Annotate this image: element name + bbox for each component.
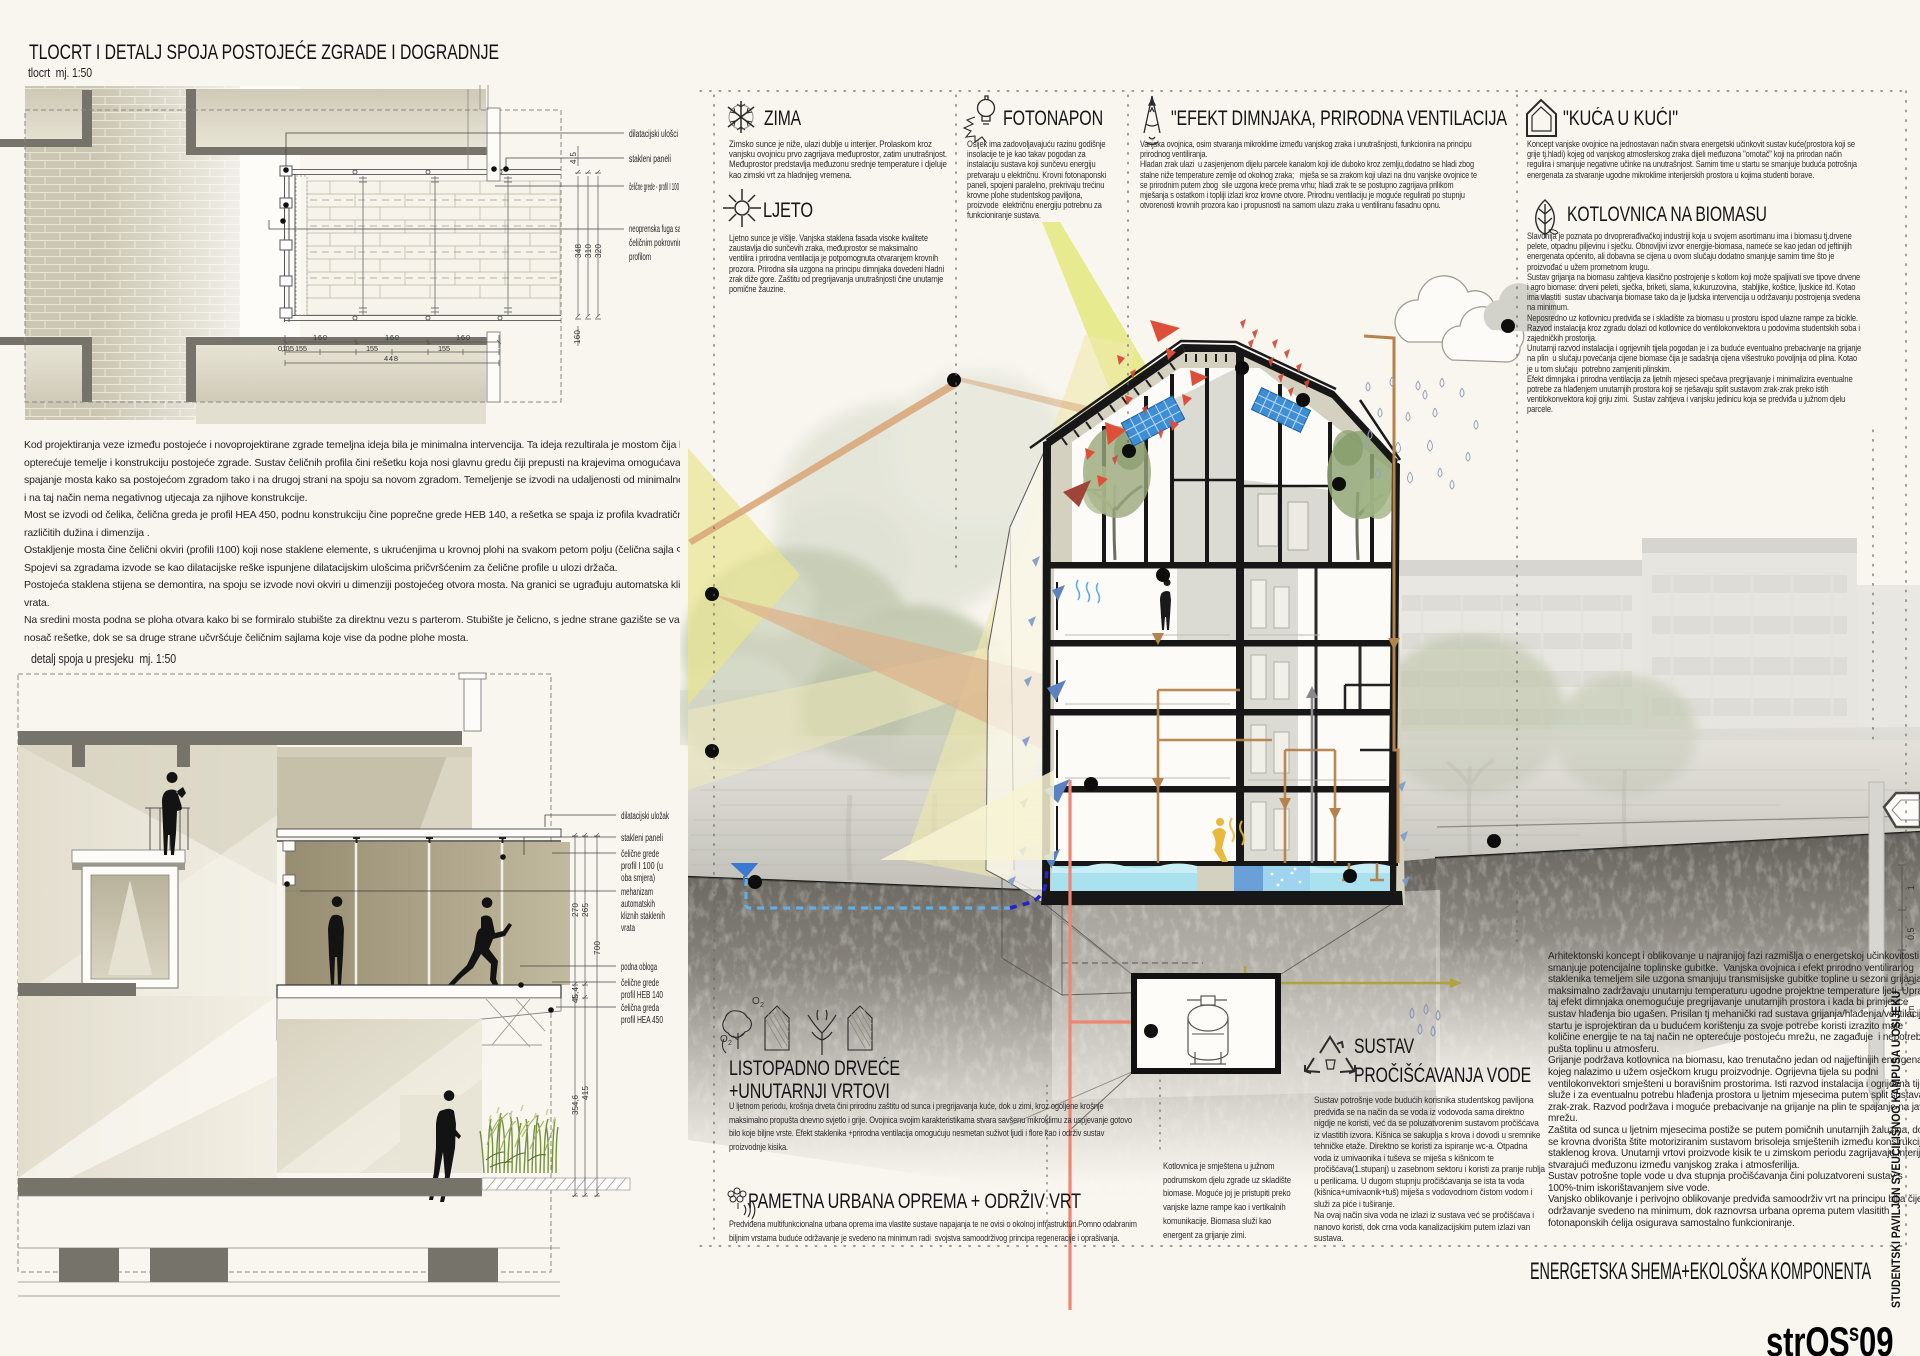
svg-text:O: O [720, 1034, 728, 1045]
svg-text:2: 2 [760, 1002, 764, 1009]
svg-text:O: O [752, 996, 760, 1007]
svg-text:2: 2 [728, 1040, 732, 1047]
